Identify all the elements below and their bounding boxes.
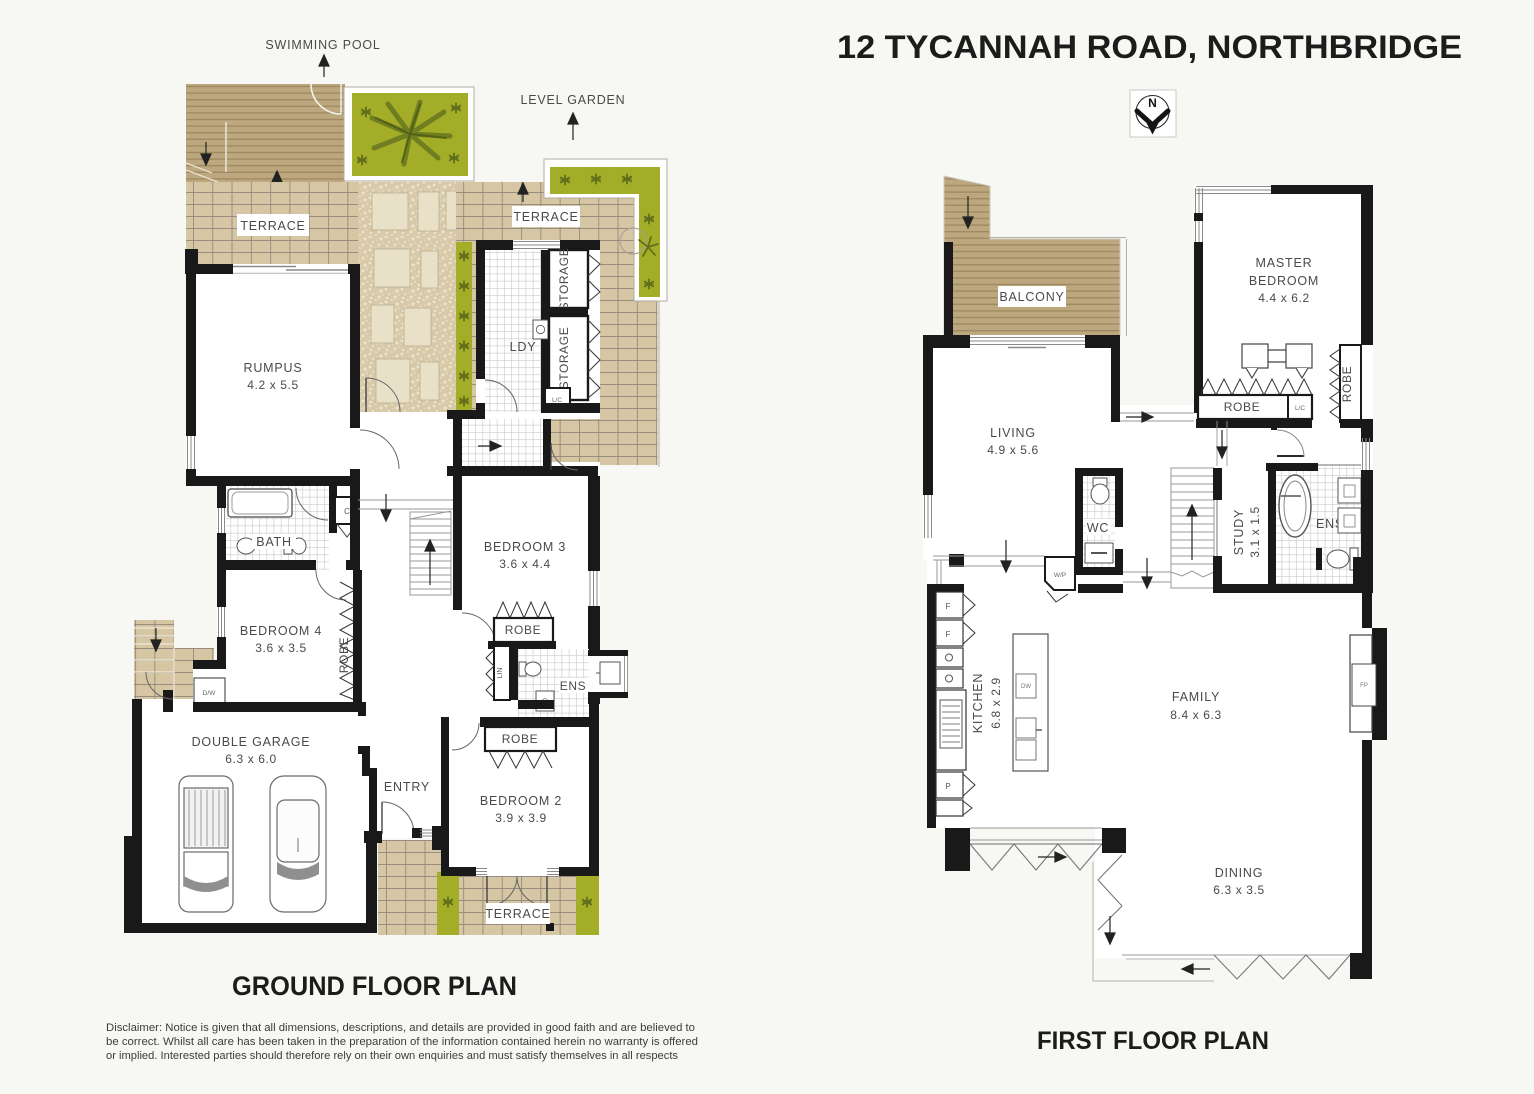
svg-text:L/C: L/C (552, 397, 562, 404)
svg-text:ROBE: ROBE (505, 623, 541, 637)
svg-text:ROBE: ROBE (337, 637, 351, 673)
svg-text:D/W: D/W (203, 690, 217, 697)
svg-text:4.2 x 5.5: 4.2 x 5.5 (247, 378, 298, 392)
svg-text:LIN: LIN (497, 668, 504, 679)
svg-text:FP: FP (1360, 683, 1368, 689)
svg-text:RUMPUS: RUMPUS (244, 361, 303, 375)
svg-text:ROBE: ROBE (1224, 400, 1260, 414)
svg-text:3.1 x 1.5: 3.1 x 1.5 (1248, 506, 1262, 557)
svg-text:STUDY: STUDY (1232, 509, 1246, 555)
svg-text:ROBE: ROBE (502, 732, 538, 746)
svg-text:8.4 x 6.3: 8.4 x 6.3 (1170, 708, 1221, 722)
svg-text:3.6 x 4.4: 3.6 x 4.4 (499, 557, 550, 571)
svg-text:6.8 x 2.9: 6.8 x 2.9 (989, 677, 1003, 728)
svg-text:TERRACE: TERRACE (485, 907, 550, 921)
svg-text:6.3 x 6.0: 6.3 x 6.0 (225, 752, 276, 766)
svg-text:ROBE: ROBE (1340, 366, 1354, 402)
svg-text:BALCONY: BALCONY (999, 290, 1064, 304)
svg-text:DINING: DINING (1215, 866, 1264, 880)
svg-text:4.9 x 5.6: 4.9 x 5.6 (987, 443, 1038, 457)
svg-text:LIVING: LIVING (990, 426, 1036, 440)
svg-text:SWIMMING POOL: SWIMMING POOL (265, 38, 380, 52)
svg-text:MASTER: MASTER (1256, 256, 1313, 270)
svg-text:FAMILY: FAMILY (1172, 690, 1220, 704)
svg-text:GROUND FLOOR PLAN: GROUND FLOOR PLAN (232, 971, 517, 1001)
svg-text:F: F (946, 602, 951, 611)
svg-text:Disclaimer: Notice is given th: Disclaimer: Notice is given that all dim… (106, 1022, 695, 1034)
svg-text:3.9 x 3.9: 3.9 x 3.9 (495, 811, 546, 825)
svg-text:BATH: BATH (256, 535, 292, 549)
svg-text:be correct. Whilst all care ha: be correct. Whilst all care has been tak… (106, 1036, 698, 1048)
svg-text:DOUBLE GARAGE: DOUBLE GARAGE (192, 735, 311, 749)
svg-text:BEDROOM 2: BEDROOM 2 (480, 794, 562, 808)
svg-text:TERRACE: TERRACE (240, 219, 305, 233)
svg-text:P: P (945, 782, 950, 791)
svg-text:LEVEL GARDEN: LEVEL GARDEN (520, 93, 625, 107)
svg-text:ENTRY: ENTRY (384, 780, 430, 794)
svg-text:BEDROOM: BEDROOM (1249, 274, 1319, 288)
svg-text:DW: DW (1021, 684, 1031, 690)
svg-text:N: N (1148, 96, 1157, 110)
svg-text:KITCHEN: KITCHEN (971, 673, 985, 733)
svg-text:12 TYCANNAH ROAD, NORTHBRIDGE: 12 TYCANNAH ROAD, NORTHBRIDGE (837, 29, 1462, 65)
svg-text:3.6 x 3.5: 3.6 x 3.5 (255, 641, 306, 655)
svg-text:STORAGE: STORAGE (557, 327, 571, 390)
svg-text:BEDROOM 4: BEDROOM 4 (240, 624, 322, 638)
svg-text:F: F (946, 630, 951, 639)
svg-text:BEDROOM 3: BEDROOM 3 (484, 540, 566, 554)
svg-text:FIRST FLOOR PLAN: FIRST FLOOR PLAN (1037, 1027, 1269, 1055)
svg-text:ENS: ENS (560, 679, 586, 693)
svg-text:C: C (344, 507, 350, 516)
svg-text:LDY: LDY (510, 340, 537, 354)
svg-text:W/P: W/P (1054, 572, 1066, 579)
svg-text:TERRACE: TERRACE (513, 210, 578, 224)
svg-text:or implied. Interested parties: or implied. Interested parties should th… (106, 1050, 678, 1062)
svg-text:4.4 x 6.2: 4.4 x 6.2 (1258, 291, 1309, 305)
svg-text:STORAGE: STORAGE (557, 248, 571, 311)
svg-text:WC: WC (1087, 521, 1109, 535)
svg-text:L/C: L/C (1295, 405, 1305, 412)
svg-text:6.3 x 3.5: 6.3 x 3.5 (1213, 883, 1264, 897)
